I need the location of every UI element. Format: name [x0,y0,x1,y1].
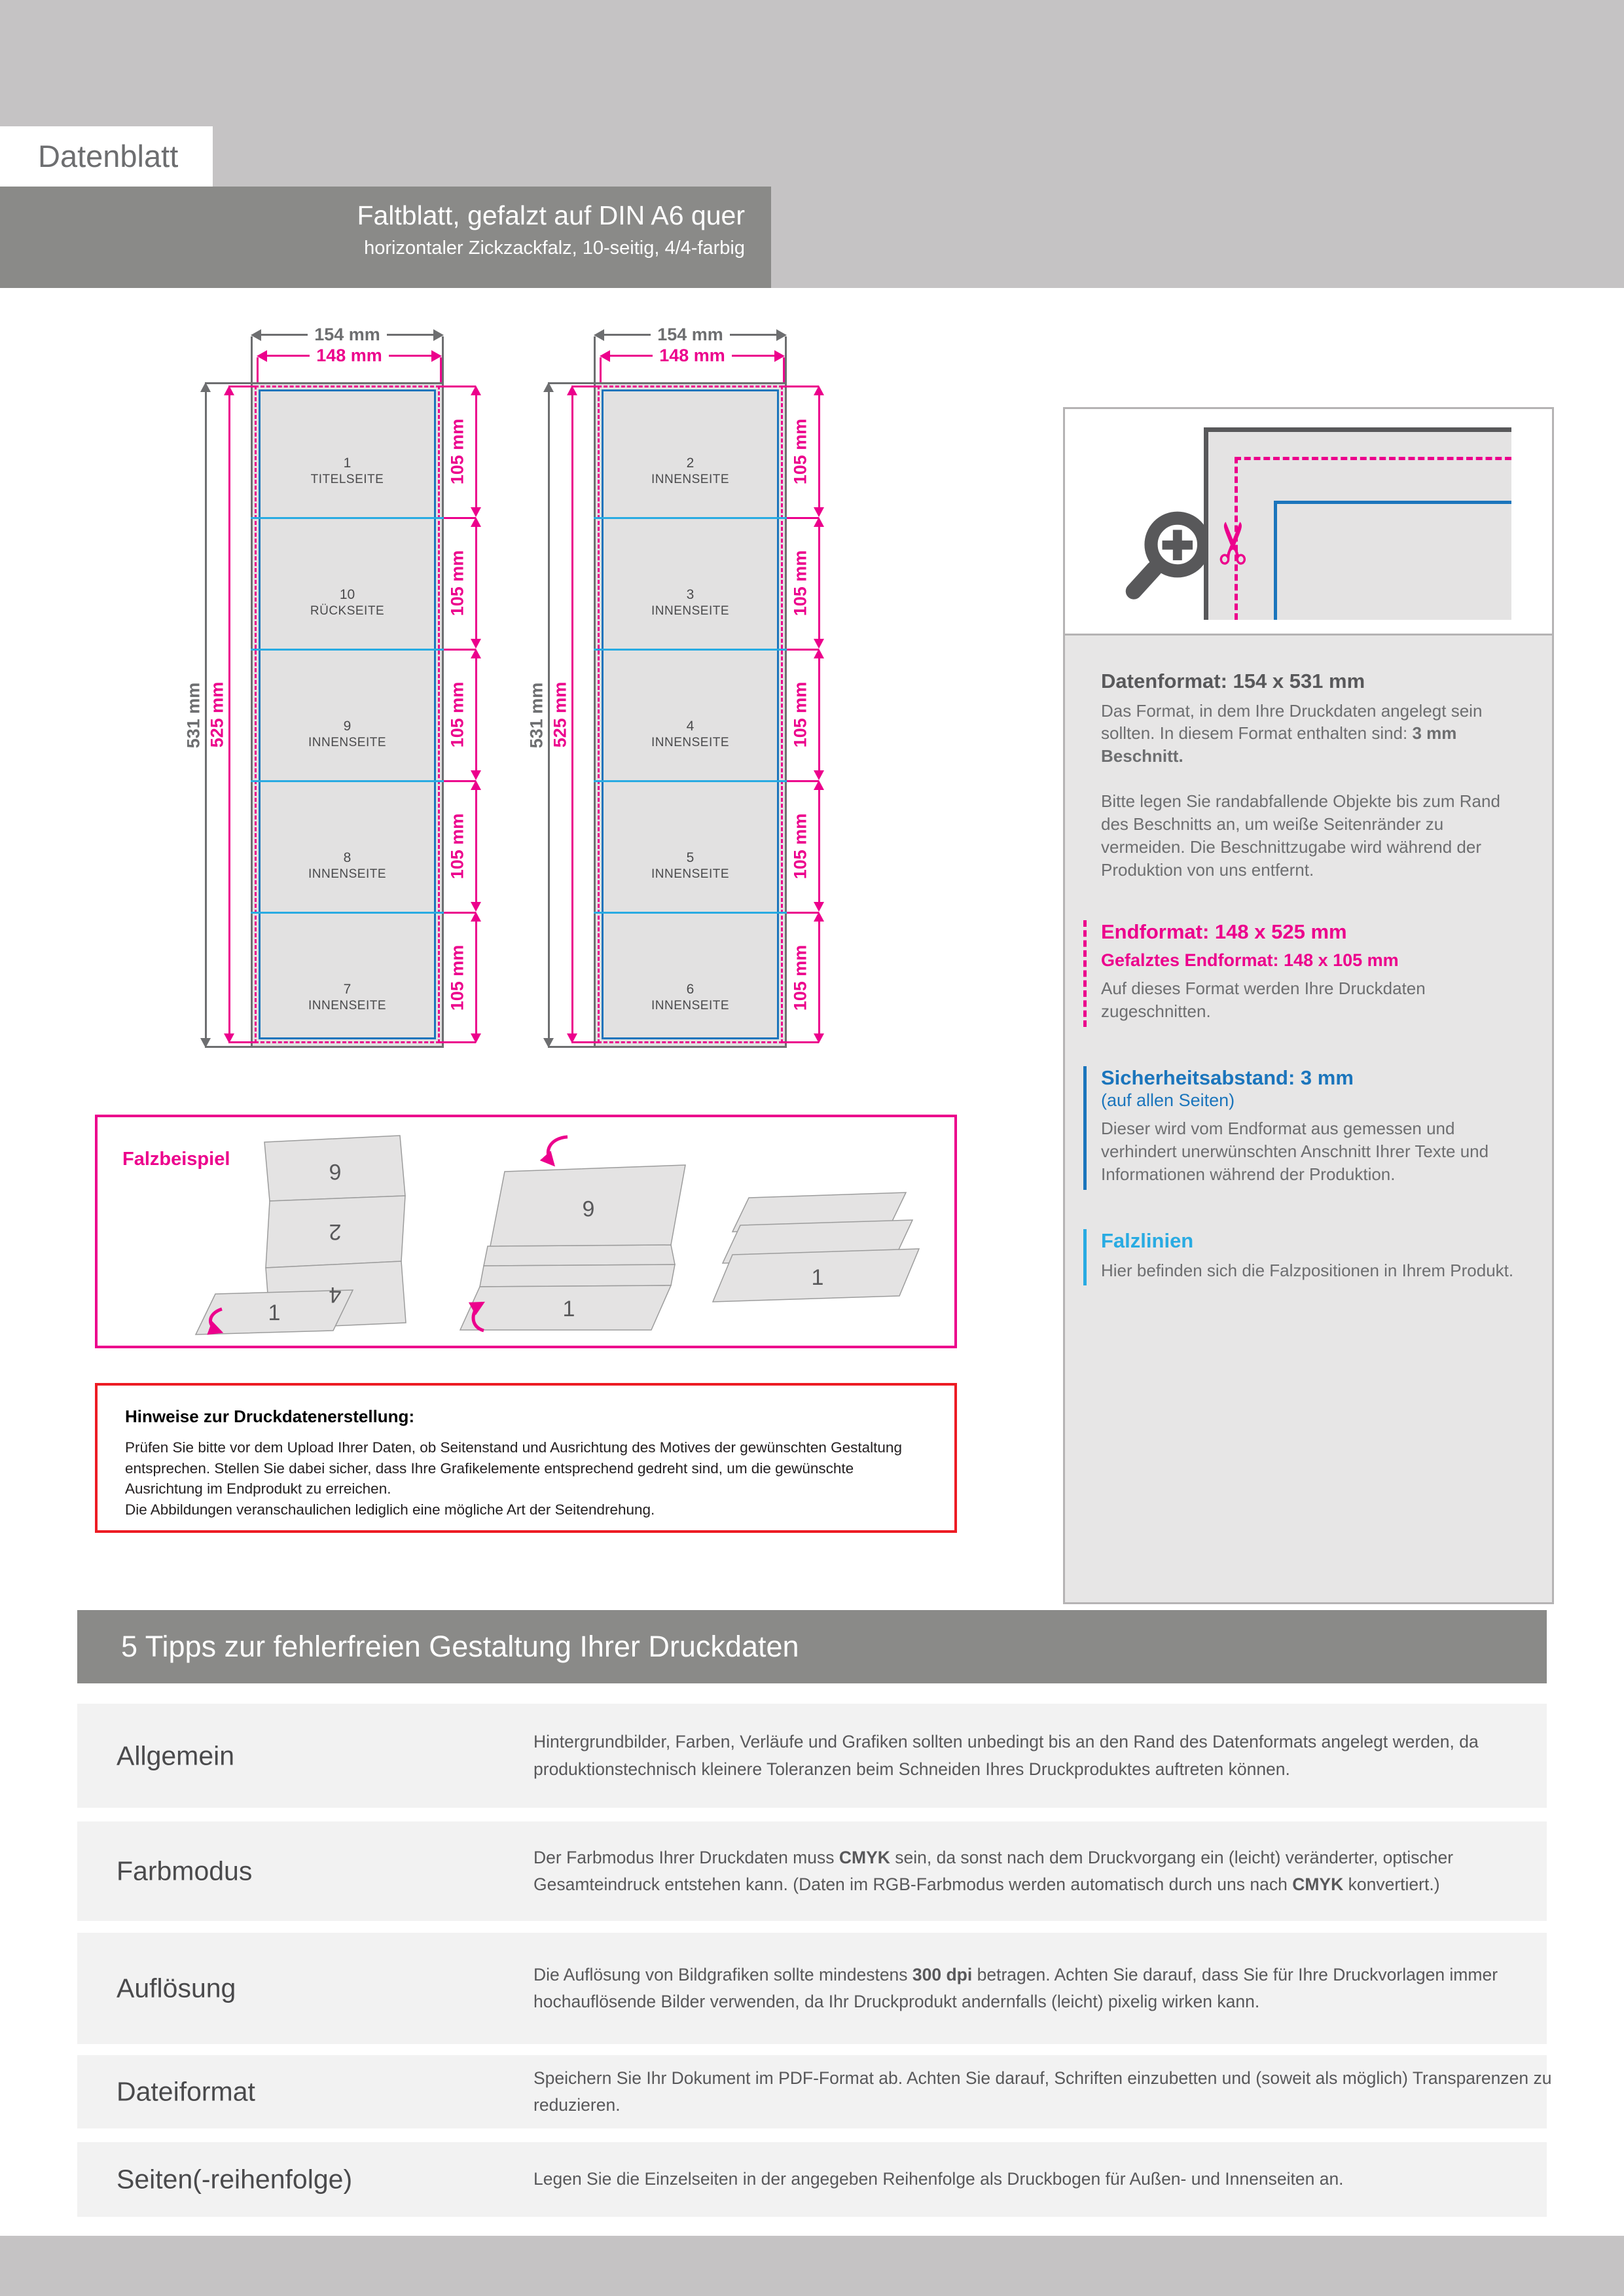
panel-label: 3INNENSEITE [594,586,787,620]
panel-label: 6INNENSEITE [594,980,787,1014]
extension-line [600,357,602,386]
panel-label: 8INNENSEITE [251,849,444,883]
panel-dimension: 105 mm [471,780,481,912]
strip-page-number: 4 [329,1282,342,1307]
extension-line [205,382,251,384]
dimension-label: 531 mm [184,682,204,748]
panel-label: 2INNENSEITE [594,454,787,488]
tip-label: Allgemein [117,1740,234,1771]
extension-line [205,1046,251,1048]
dimension-label: 525 mm [550,681,571,747]
fold-line [251,517,444,519]
panel-label: 9INNENSEITE [251,717,444,751]
falzlinien-block: Falzlinien Hier befinden sich die Falzpo… [1083,1229,1521,1285]
fold-line [594,912,787,914]
panel-dimension: 105 mm [814,517,824,649]
arrow-up-icon [567,386,577,395]
doc-label: Datenblatt [0,126,213,187]
format-explanations: Datenformat: 154 x 531 mm Das Format, in… [1065,634,1552,1602]
endformat-heading: Endformat: 148 x 525 mm [1101,920,1521,944]
arrow-down-icon [543,1038,554,1048]
safety-line-demo [1274,501,1511,620]
tip-row-farbmodus: Farbmodus Der Farbmodus Ihrer Druckdaten… [77,1821,1547,1921]
tip-label: Dateiformat [117,2077,255,2108]
panel-label: 7INNENSEITE [251,980,444,1014]
fold-line [251,912,444,914]
tip-row-allgemein: Allgemein Hintergrundbilder, Farben, Ver… [77,1704,1547,1808]
panel-dimension: 105 mm [471,517,481,649]
strip-page-number: 1 [563,1297,575,1321]
sicherheitsabstand-subheading: (auf allen Seiten) [1101,1090,1521,1111]
panel-label: 5INNENSEITE [594,849,787,883]
dimension-label: 154 mm [308,326,387,344]
panel-label: 1TITELSEITE [251,454,444,488]
panel-dimension: 105 mm [471,649,481,780]
dimension-label: 154 mm [651,326,730,344]
extension-line [594,336,596,382]
dimension-label: 525 mm [208,681,228,747]
panel-dimension: 105 mm [471,386,481,517]
fold-line [594,649,787,651]
page-subtitle: horizontaler Zickzackfalz, 10-seitig, 4/… [0,237,745,260]
arrow-down-icon [200,1038,211,1048]
fold-line [594,517,787,519]
extension-line [251,336,253,382]
panel-dimension: 105 mm [814,649,824,780]
arrow-up-icon [543,382,554,392]
fold-example-illustration: 6 2 4 1 6 1 1 [117,1122,935,1340]
falzlinien-text: Hier befinden sich die Falzpositionen in… [1101,1259,1521,1286]
scissors-icon: ✂ [1200,519,1267,567]
dimension-label: 148 mm [310,347,389,365]
hinweise-title: Hinweise zur Druckdatenerstellung: [125,1407,925,1427]
tip-body: Der Farbmodus Ihrer Druckdaten muss CMYK… [533,1821,1555,1921]
sheet1-outer-width-dimension: 154 mm [251,329,444,340]
arrow-up-icon [224,386,234,395]
sheet1-trim-width-dimension: 148 mm [257,350,442,361]
arrow-down-icon [224,1033,234,1043]
tip-body: Hintergrundbilder, Farben, Verläufe und … [533,1704,1555,1808]
falzbeispiel-box: Falzbeispiel 6 2 4 1 6 1 [95,1115,957,1348]
sheet2-trim-height-dimension: 525 mm [567,386,577,1043]
panel-label: 10RÜCKSEITE [251,586,444,620]
sheet1-trim-height-dimension: 525 mm [224,386,234,1043]
tip-body: Speichern Sie Ihr Dokument im PDF-Format… [533,2055,1555,2128]
page-corner-demo: ✂ [1204,427,1511,620]
panel-dimension: 105 mm [814,912,824,1043]
datenformat-text: Das Format, in dem Ihre Druckdaten angel… [1101,700,1521,768]
datenformat-heading: Datenformat: 154 x 531 mm [1101,670,1521,693]
sheet2-panel-height-dimensions: 105 mm 105 mm 105 mm 105 mm 105 mm [814,386,824,1043]
tip-label: Farbmodus [117,1856,252,1887]
tip-row-dateiformat: Dateiformat Speichern Sie Ihr Dokument i… [77,2055,1547,2128]
tip-label: Seiten(-reihenfolge) [117,2164,352,2195]
tip-body: Legen Sie die Einzelseiten in der angege… [533,2142,1555,2217]
tip-label: Auflösung [117,1973,236,2004]
fold-line [594,780,787,782]
dimension-label: 148 mm [653,347,732,365]
arrow-down-icon [567,1033,577,1043]
endformat-text: Auf dieses Format werden Ihre Druckdaten… [1101,977,1521,1027]
panel-label: 4INNENSEITE [594,717,787,751]
strip-page-number: 6 [583,1196,595,1221]
endformat-block: Endformat: 148 x 525 mm Gefalztes Endfor… [1083,920,1521,1026]
fold-arrow-icon [548,1137,568,1164]
sheet2-outer-width-dimension: 154 mm [594,329,787,340]
extension-line [257,357,259,386]
tip-row-aufloesung: Auflösung Die Auflösung von Bildgrafiken… [77,1933,1547,2044]
fold-line [251,780,444,782]
datenformat-text2: Bitte legen Sie randabfallende Objekte b… [1101,790,1521,881]
panel-dimension: 105 mm [471,912,481,1043]
sicherheitsabstand-block: Sicherheitsabstand: 3 mm (auf allen Seit… [1083,1066,1521,1190]
strip-page-number: 6 [329,1159,342,1184]
sicherheitsabstand-text: Dieser wird vom Endformat aus gemessen u… [1101,1117,1521,1189]
tip-body: Die Auflösung von Bildgrafiken sollte mi… [533,1933,1555,2044]
hinweise-text: Prüfen Sie bitte vor dem Upload Ihrer Da… [125,1437,925,1520]
sheet2-trim-width-dimension: 148 mm [600,350,785,361]
tipps-banner: 5 Tipps zur fehlerfreien Gestaltung Ihre… [77,1610,1547,1683]
extension-line [785,336,787,382]
hinweise-box: Hinweise zur Druckdatenerstellung: Prüfe… [95,1383,957,1533]
bleed-detail-picture: ✂ [1065,409,1552,634]
unfolded-strip [196,1136,406,1335]
footer-gray-band [0,2236,1624,2296]
doc-label-box: Datenblatt [0,126,213,187]
strip-page-number: 1 [812,1265,824,1290]
sheet1-panel-height-dimensions: 105 mm 105 mm 105 mm 105 mm 105 mm [471,386,481,1043]
endformat-subheading: Gefalztes Endformat: 148 x 105 mm [1101,950,1521,971]
tipps-banner-title: 5 Tipps zur fehlerfreien Gestaltung Ihre… [77,1630,799,1664]
sicherheitsabstand-heading: Sicherheitsabstand: 3 mm [1101,1066,1521,1090]
strip-page-number: 2 [329,1219,342,1244]
arrow-up-icon [200,382,211,392]
panel-dimension: 105 mm [814,386,824,517]
strip-page-number: 1 [268,1300,281,1325]
page-title: Faltblatt, gefalzt auf DIN A6 quer [0,200,745,232]
falzlinien-heading: Falzlinien [1101,1229,1521,1253]
fold-line [251,649,444,651]
extension-line [783,357,785,386]
title-banner: Faltblatt, gefalzt auf DIN A6 quer horiz… [0,187,771,288]
extension-line [440,357,442,386]
dimension-label: 531 mm [527,682,547,748]
panel-dimension: 105 mm [814,780,824,912]
extension-line [442,336,444,382]
tip-row-seitenreihenfolge: Seiten(-reihenfolge) Legen Sie die Einze… [77,2142,1547,2217]
extension-line [548,382,594,384]
info-card: ✂ Datenformat: 154 x 531 mm Das Format, … [1063,407,1554,1604]
extension-line [548,1046,594,1048]
